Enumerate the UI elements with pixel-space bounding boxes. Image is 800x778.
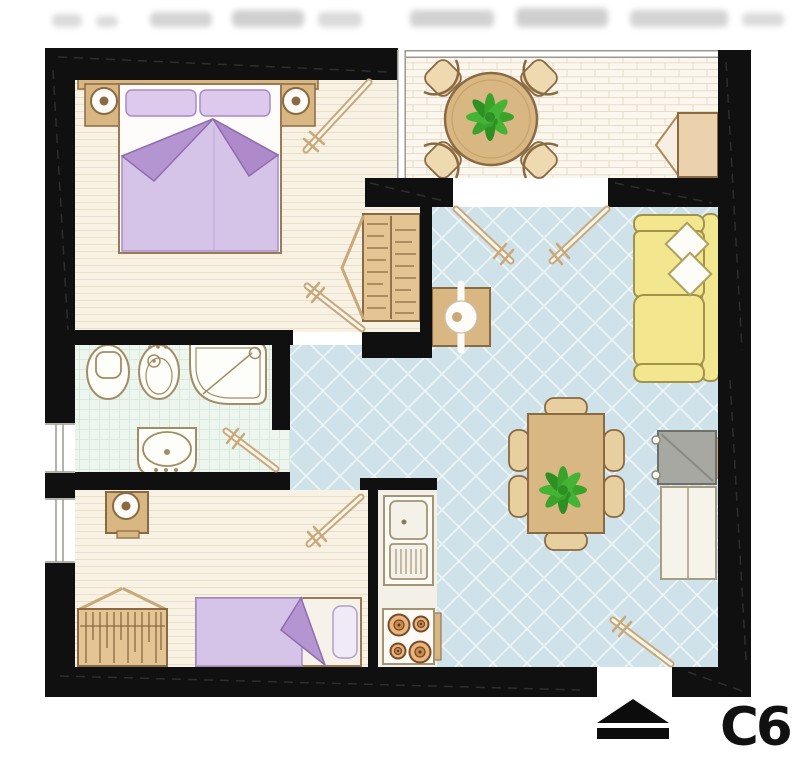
sink-unit <box>384 496 433 585</box>
floor-plan-page: C6 <box>0 0 800 778</box>
pillow-right <box>200 90 270 116</box>
pillow-left <box>126 90 196 116</box>
lamp-dot <box>292 97 301 106</box>
wall-hall-corner <box>362 332 432 358</box>
wall-bottom-left <box>45 667 597 697</box>
double-bed <box>119 84 281 253</box>
desk <box>106 492 148 538</box>
wall-bathroom-right <box>272 332 290 430</box>
window-left-1 <box>45 423 75 473</box>
sideboard <box>661 487 716 579</box>
toilet <box>87 345 129 399</box>
washbasin <box>138 428 196 476</box>
stove <box>383 609 441 664</box>
dining-chair-left-2 <box>509 476 529 517</box>
pillow <box>333 606 357 658</box>
wall-left-upper <box>45 48 75 423</box>
wall-bottom-right <box>672 667 751 697</box>
terrace-railing <box>398 50 718 58</box>
tv-unit <box>652 431 723 484</box>
arrow-bar <box>597 728 669 739</box>
entrance-arrow <box>597 699 669 739</box>
dining-plant <box>539 466 587 514</box>
burner <box>414 617 429 632</box>
sink-basin <box>390 501 427 539</box>
hallway-floor <box>290 345 430 490</box>
wall-bathroom-bedroom2 <box>45 472 290 490</box>
burner <box>389 615 410 636</box>
tv-knob <box>652 471 660 479</box>
burner <box>391 644 406 659</box>
sofa <box>634 214 719 382</box>
sofa-cushion-2 <box>634 295 704 367</box>
arrow-triangle <box>597 699 669 723</box>
floor-plan-canvas <box>0 0 800 778</box>
tv-knob <box>652 436 660 444</box>
dining-chair-left-1 <box>509 430 529 471</box>
dining-chair-right-2 <box>604 476 624 517</box>
single-bed <box>196 598 361 666</box>
lamp-dot <box>100 97 109 106</box>
shower <box>190 343 266 404</box>
kitchen <box>383 496 441 664</box>
wall-bedroom-bathroom <box>45 330 293 345</box>
dining-chair-right-1 <box>604 430 624 471</box>
window-left-2 <box>45 498 75 563</box>
wall-right <box>718 50 751 670</box>
terrace-plant <box>466 93 514 141</box>
terrace-glass-partition <box>397 50 406 178</box>
unit-label: C6 <box>720 700 800 760</box>
bidet <box>139 345 179 399</box>
side-table <box>432 284 490 350</box>
sofa-armrest-bottom <box>634 364 704 382</box>
wall-kitchen-left <box>368 478 378 667</box>
burner <box>410 642 431 663</box>
